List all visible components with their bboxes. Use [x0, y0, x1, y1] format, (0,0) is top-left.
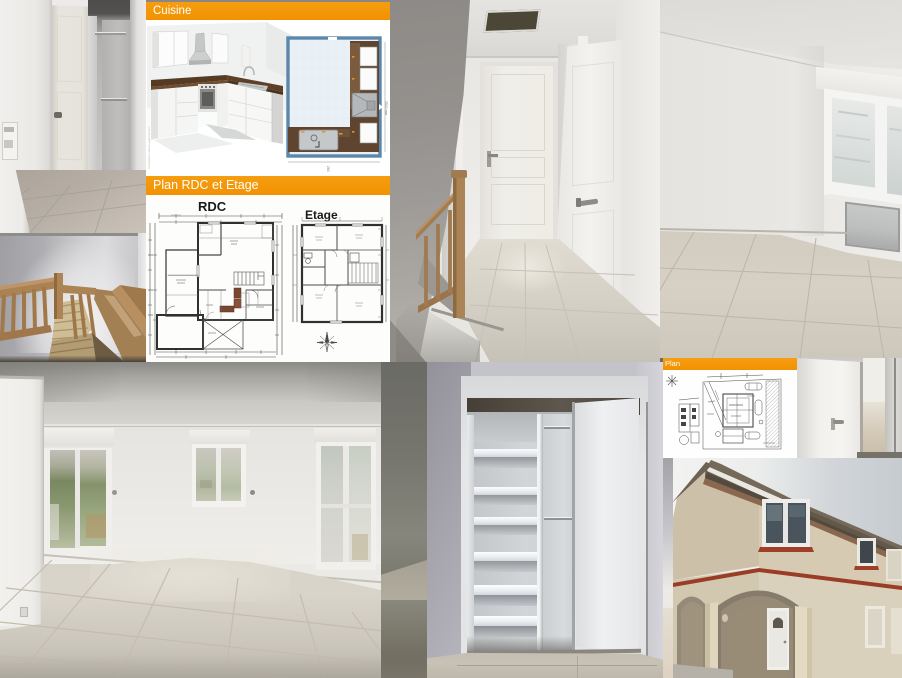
svg-text:conception cuisine agencement: conception cuisine agencement	[147, 127, 151, 169]
svg-text:RDC: RDC	[198, 199, 227, 214]
svg-text:260: 260	[326, 166, 330, 172]
svg-text:Etage: Etage	[305, 208, 338, 222]
svg-text:2502 mm: 2502 mm	[384, 101, 388, 115]
